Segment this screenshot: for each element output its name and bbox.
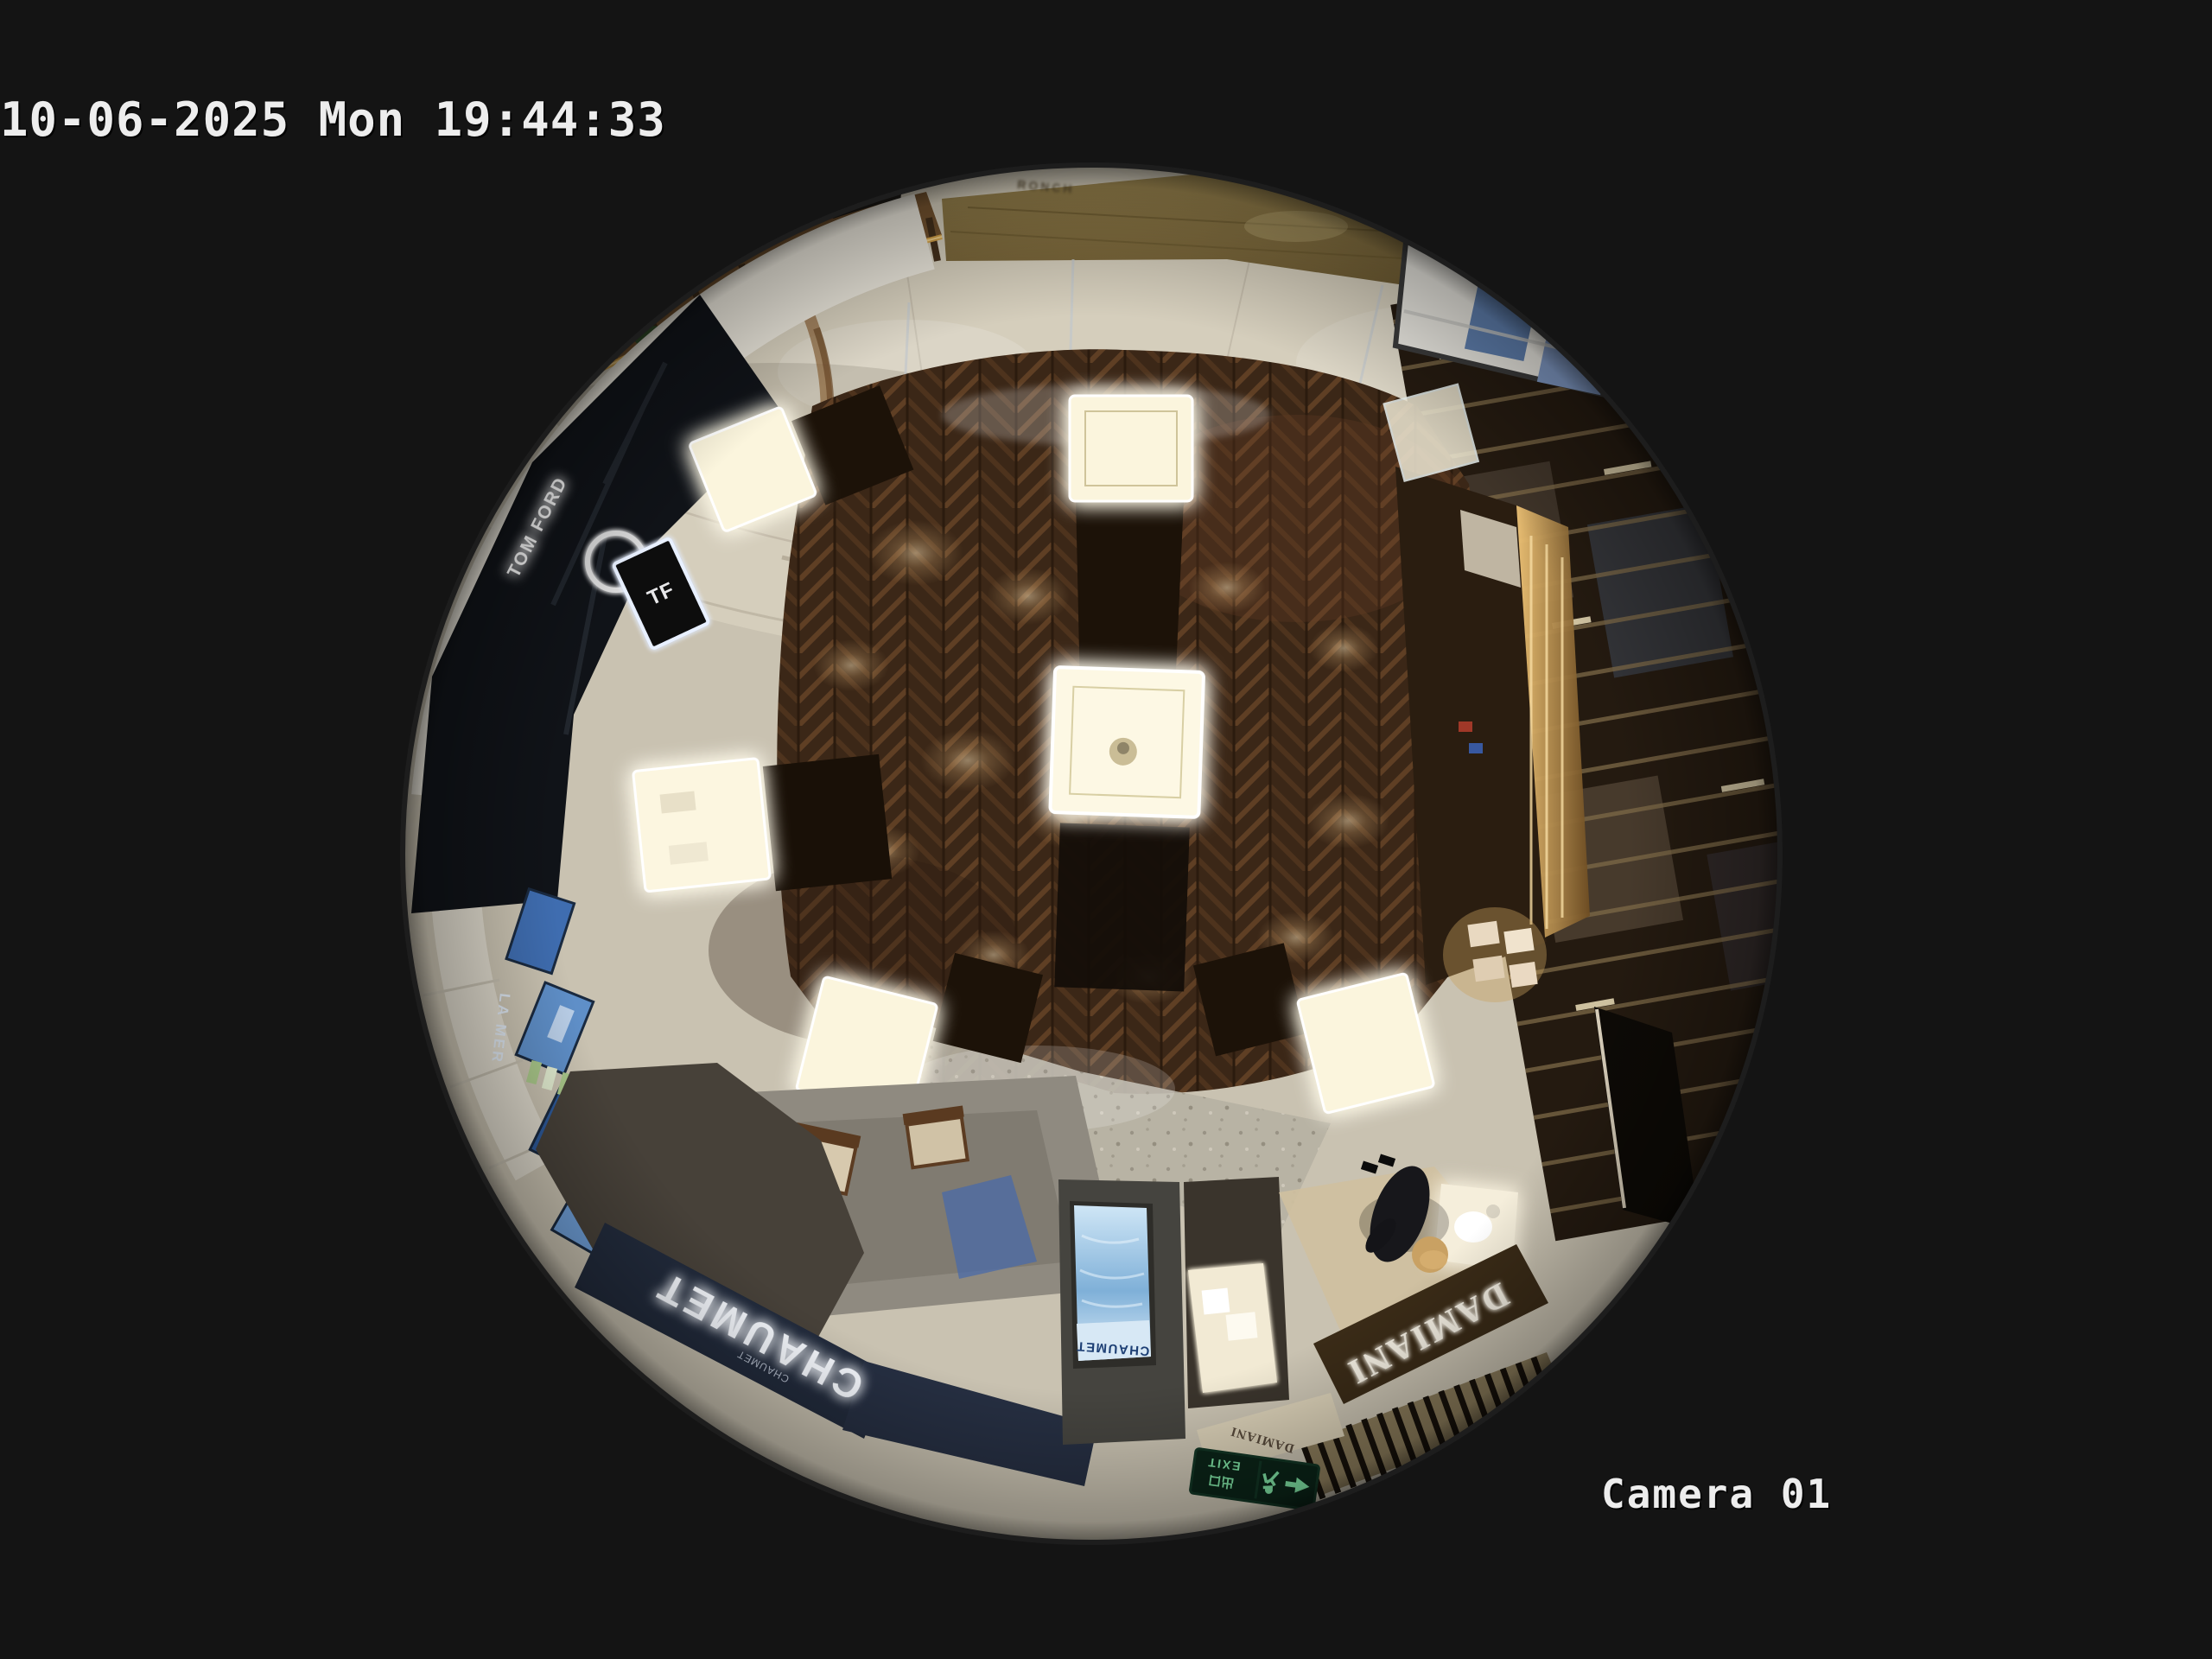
cctv-frame: RONCH xyxy=(0,0,2212,1659)
fisheye-camera-view: RONCH xyxy=(0,0,2212,1659)
lens-vignette xyxy=(403,165,1780,1542)
osd-timestamp: 10-06-2025 Mon 19:44:33 xyxy=(0,97,666,143)
osd-camera-label: Camera 01 xyxy=(1601,1474,1832,1514)
